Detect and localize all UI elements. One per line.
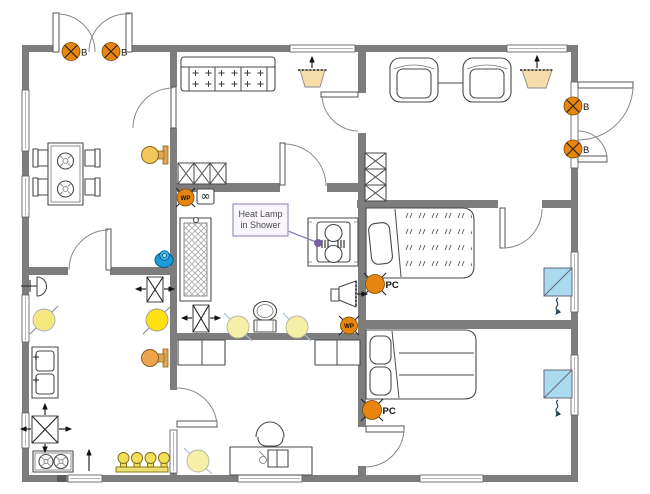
vanity-light-bar[interactable] — [116, 453, 170, 473]
window — [507, 45, 567, 52]
receptacle-wp-label: WP — [344, 324, 354, 330]
receptacle-infinity-symbol: ∞ — [201, 189, 211, 203]
window — [238, 475, 302, 482]
wall-sconce[interactable] — [142, 349, 169, 367]
window — [22, 413, 29, 448]
door-bedroom-2 — [366, 426, 404, 467]
receptacle-pc-label: PC — [383, 406, 396, 417]
recessed-light[interactable] — [143, 306, 171, 334]
callout-line-1: Heat Lamp — [238, 209, 282, 219]
closet[interactable] — [178, 340, 225, 365]
window — [170, 430, 177, 473]
blanked-receptacle[interactable]: B — [102, 43, 127, 61]
blanked-receptacle[interactable]: B — [564, 97, 589, 115]
shower-stall[interactable] — [180, 218, 211, 302]
tall-cabinet[interactable] — [365, 153, 386, 201]
callout-line-2: in Shower — [240, 220, 280, 230]
armchair[interactable] — [463, 58, 511, 102]
receptacle-b-label: B — [121, 48, 127, 59]
door-study — [177, 388, 217, 427]
wall-post — [57, 475, 66, 482]
door-dining-living — [133, 87, 176, 128]
bed-double[interactable] — [366, 330, 476, 399]
armchair[interactable] — [390, 58, 438, 102]
door-living-family — [321, 92, 358, 131]
desk[interactable] — [230, 447, 312, 475]
kitchen-sink[interactable] — [32, 347, 58, 398]
ceiling-vent[interactable] — [298, 57, 327, 87]
blanked-receptacle[interactable]: B — [564, 140, 589, 158]
window — [290, 45, 355, 52]
door-bedroom-1 — [500, 208, 542, 248]
toilet[interactable] — [254, 302, 277, 333]
window — [22, 176, 29, 217]
door-dining-kitchen — [69, 229, 111, 270]
weatherproof-receptacle[interactable]: WP — [176, 188, 195, 207]
air-conditioner[interactable] — [544, 370, 572, 416]
window — [22, 295, 29, 342]
bed-single[interactable] — [366, 208, 474, 278]
windows — [22, 45, 578, 482]
dining-set[interactable] — [33, 143, 100, 205]
computer-receptacle[interactable]: PC — [361, 399, 396, 421]
special-receptacle[interactable]: ∞ — [197, 189, 214, 204]
floor-plan-canvas: B B B B WP WP ∞ PC PC — [0, 0, 650, 494]
blanked-receptacle[interactable]: B — [62, 43, 87, 61]
sofa[interactable] — [181, 57, 275, 91]
recessed-light[interactable] — [30, 306, 58, 334]
base-cabinet[interactable] — [178, 163, 226, 184]
wall-sconce[interactable] — [142, 146, 169, 164]
receptacle-b-label: B — [81, 48, 87, 59]
receptacle-b-label: B — [583, 145, 589, 156]
door-bathroom — [280, 143, 326, 186]
receptacle-b-label: B — [583, 102, 589, 113]
receptacle-wp-label: WP — [181, 196, 191, 202]
weatherproof-receptacle[interactable]: WP — [339, 316, 359, 335]
ceiling-vent[interactable] — [520, 56, 554, 88]
recessed-light[interactable] — [184, 448, 212, 474]
window — [68, 475, 102, 482]
floor-plan: B B B B WP WP ∞ PC PC — [0, 0, 650, 494]
walls — [22, 45, 578, 482]
closet[interactable] — [315, 340, 360, 365]
window — [420, 475, 483, 482]
desk-chair[interactable] — [256, 422, 284, 446]
air-conditioner[interactable] — [544, 268, 572, 314]
exhaust-fan[interactable] — [182, 305, 220, 332]
receptacle-pc-label: PC — [386, 280, 399, 291]
exhaust-fan[interactable] — [136, 277, 174, 302]
window — [22, 90, 29, 151]
stove[interactable] — [33, 451, 73, 472]
